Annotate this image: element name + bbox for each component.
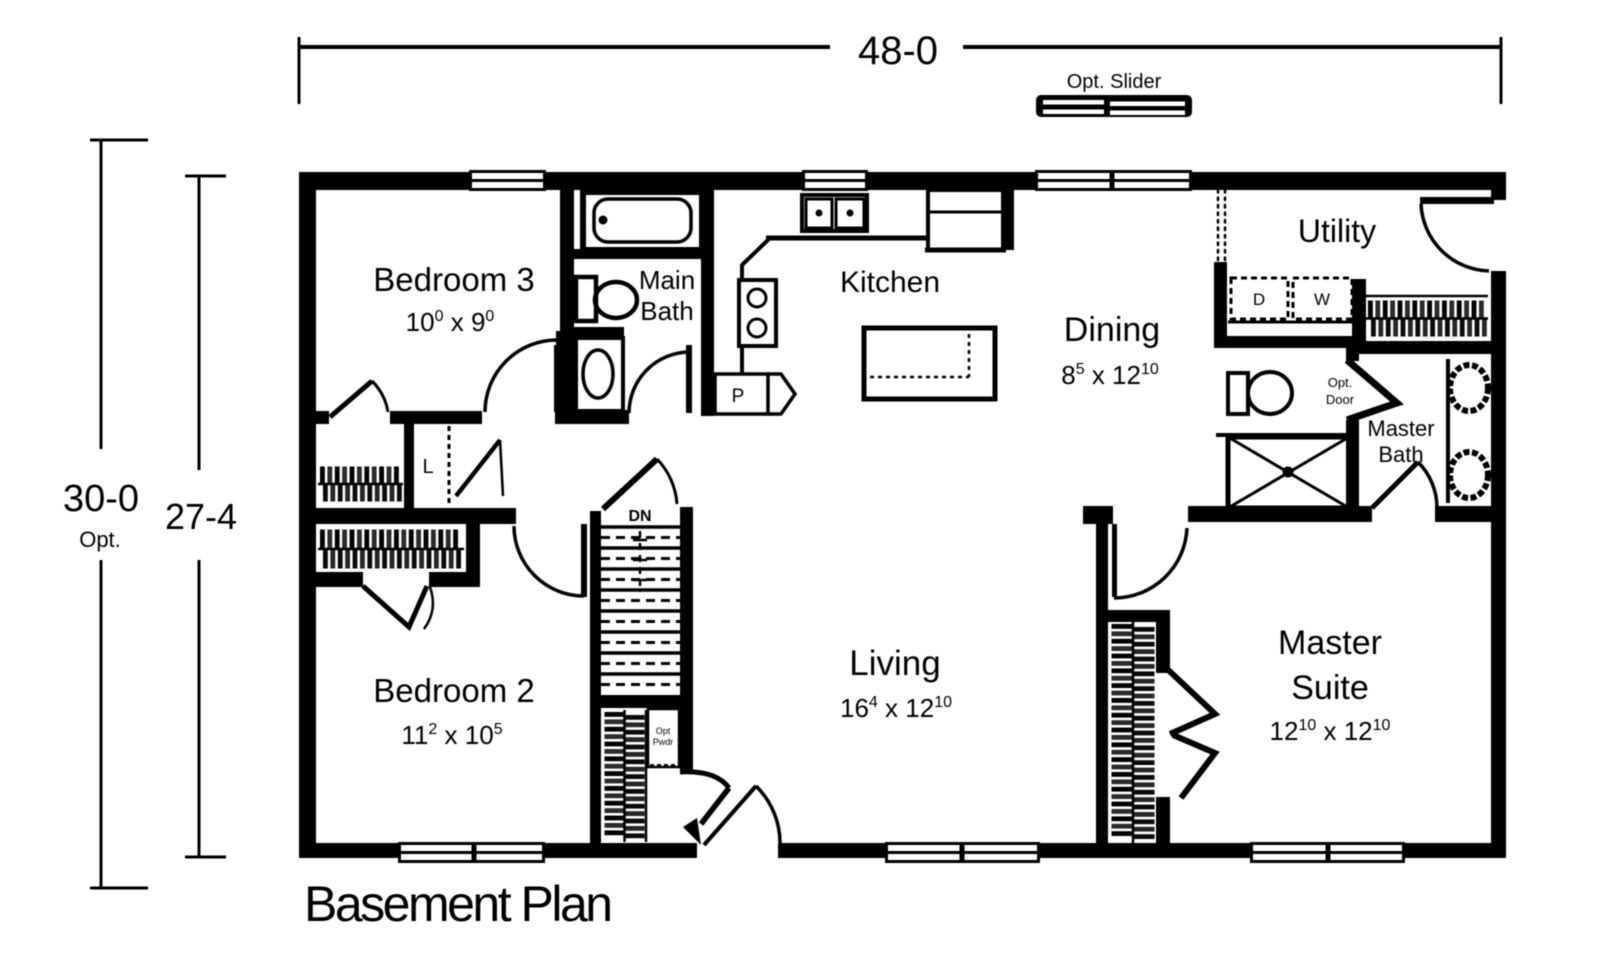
- svg-text:48-0: 48-0: [858, 29, 938, 73]
- svg-text:Living: Living: [849, 644, 940, 683]
- svg-text:Opt. Slider: Opt. Slider: [1067, 71, 1162, 93]
- svg-text:Pwdr: Pwdr: [653, 737, 674, 747]
- svg-text:Main: Main: [639, 265, 695, 295]
- svg-text:112​ x 105​: 112​ x 105​: [401, 720, 502, 750]
- svg-text:27-4: 27-4: [165, 496, 237, 537]
- svg-text:Opt.: Opt.: [79, 527, 121, 552]
- svg-text:Bedroom 2: Bedroom 2: [373, 672, 534, 709]
- svg-text:D: D: [1253, 290, 1265, 309]
- svg-text:L: L: [422, 456, 433, 478]
- svg-text:P: P: [732, 386, 745, 407]
- svg-text:Door: Door: [1326, 392, 1355, 407]
- svg-text:W: W: [1314, 290, 1330, 309]
- svg-text:Opt.: Opt.: [1328, 375, 1353, 390]
- svg-text:1210​ x 1210​: 1210​ x 1210​: [1270, 716, 1391, 746]
- svg-text:Basement Plan: Basement Plan: [304, 876, 611, 932]
- svg-text:Utility: Utility: [1298, 213, 1376, 249]
- svg-text:30-0: 30-0: [63, 478, 139, 520]
- svg-text:Bath: Bath: [640, 296, 694, 326]
- svg-text:Master: Master: [1367, 416, 1434, 441]
- svg-text:Kitchen: Kitchen: [840, 266, 940, 299]
- svg-text:Dining: Dining: [1064, 311, 1160, 349]
- svg-text:Master: Master: [1278, 624, 1382, 662]
- svg-text:Suite: Suite: [1291, 669, 1369, 707]
- svg-text:Bath: Bath: [1378, 442, 1423, 467]
- svg-text:Opt: Opt: [656, 726, 671, 736]
- svg-text:Bedroom 3: Bedroom 3: [373, 261, 534, 298]
- svg-text:DN: DN: [628, 508, 651, 525]
- svg-text:100​ x 90​: 100​ x 90​: [406, 307, 495, 337]
